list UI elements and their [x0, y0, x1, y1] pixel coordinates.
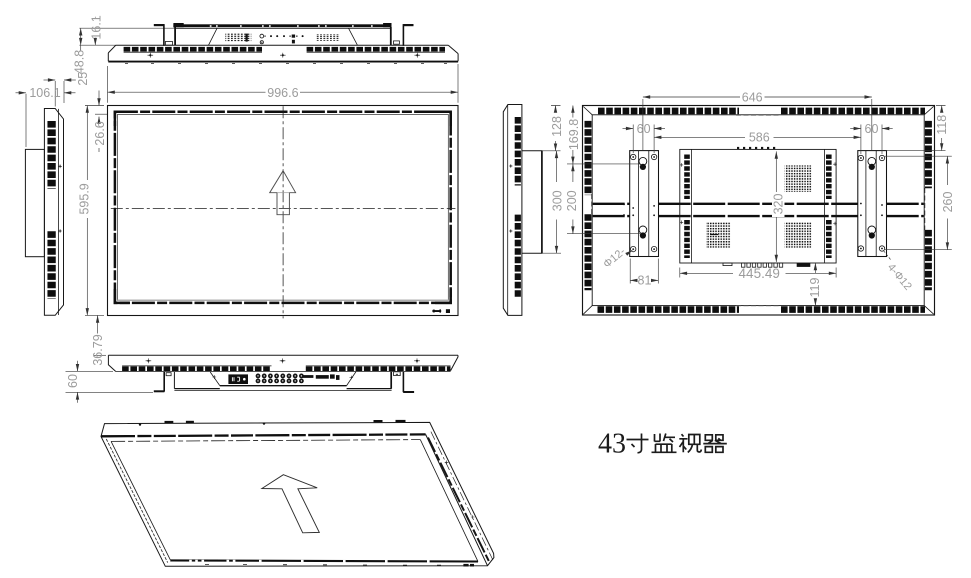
- svg-text:320: 320: [771, 194, 785, 215]
- svg-text:43: 43: [598, 429, 626, 460]
- svg-text:260: 260: [941, 192, 955, 213]
- svg-text:60: 60: [865, 122, 879, 136]
- svg-text:595.9: 595.9: [78, 183, 92, 214]
- svg-text:445.49: 445.49: [739, 266, 780, 281]
- svg-text:300: 300: [550, 190, 564, 211]
- svg-text:60: 60: [66, 374, 80, 388]
- svg-text:996.6: 996.6: [267, 86, 298, 100]
- svg-text:48.8: 48.8: [73, 50, 87, 74]
- svg-text:16.1: 16.1: [89, 15, 103, 39]
- svg-text:118: 118: [935, 115, 949, 135]
- svg-text:586: 586: [749, 131, 770, 145]
- svg-text:169.8: 169.8: [567, 119, 581, 150]
- svg-text:81: 81: [638, 274, 652, 288]
- svg-text:200: 200: [565, 190, 579, 211]
- svg-text:60: 60: [637, 122, 651, 136]
- svg-text:119: 119: [808, 277, 822, 297]
- svg-text:26.6: 26.6: [93, 121, 107, 145]
- svg-text:106.1: 106.1: [29, 86, 60, 100]
- svg-text:128: 128: [550, 116, 564, 137]
- svg-text:25: 25: [76, 72, 90, 86]
- svg-text:36.79: 36.79: [91, 334, 105, 365]
- svg-text:646: 646: [742, 90, 763, 104]
